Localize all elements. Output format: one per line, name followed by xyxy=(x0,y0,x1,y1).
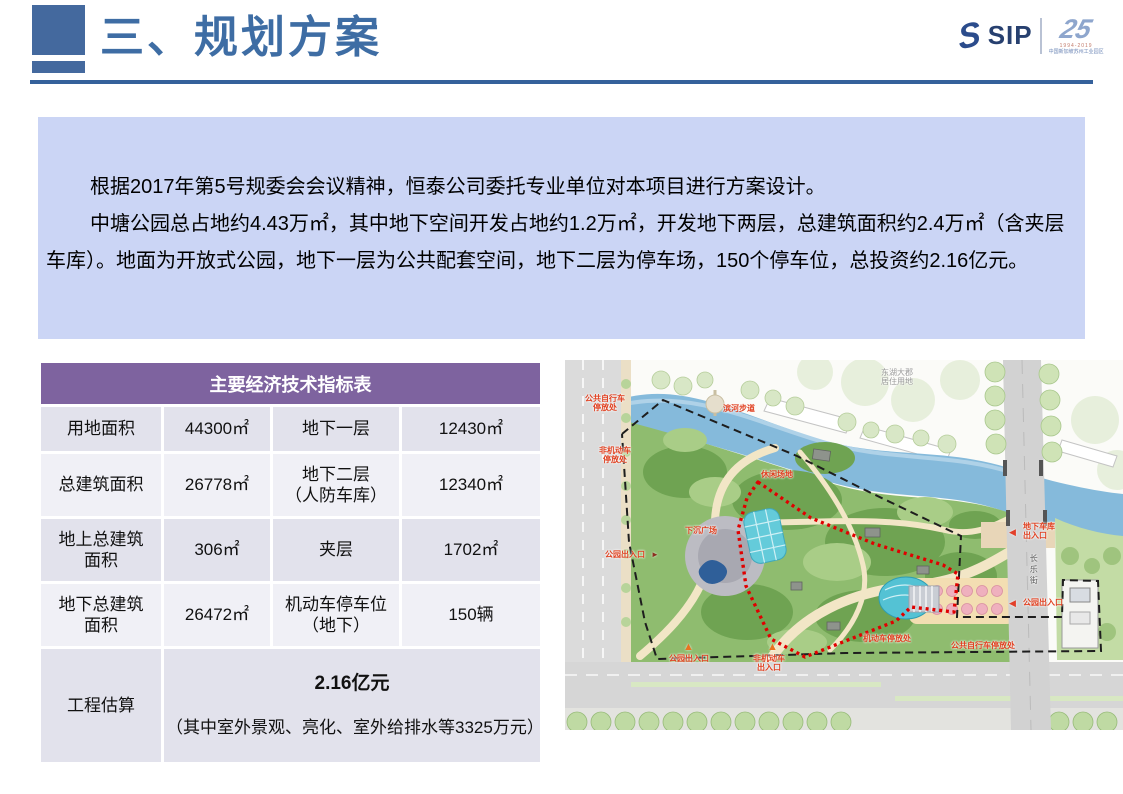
map-label-park-entrance-south: 公园出入口 xyxy=(669,654,709,663)
indicator-label: 工程估算 xyxy=(41,649,161,762)
indicator-value: 150辆 xyxy=(402,584,540,646)
indicator-value: 26472㎡ xyxy=(164,584,270,646)
map-label-bike-parking-nw: 公共自行车 停放处 xyxy=(585,394,625,412)
site-plan-graphic xyxy=(565,360,1123,730)
indicator-label: 夹层 xyxy=(273,519,399,581)
table-row: 地下总建筑 面积 26472㎡ 机动车停车位 （地下） 150辆 xyxy=(41,584,540,646)
map-label-park-entrance-east: 公园出入口 xyxy=(1023,598,1063,607)
park-entrance-east-arrow-icon: ◀ xyxy=(1009,599,1016,608)
site-plan: 公共自行车 停放处 非机动车 停放处 滨河步道 休闲场地 下沉广场 ◀ 地下车库… xyxy=(565,360,1123,730)
non-motor-entrance-arrow-icon: ▲ xyxy=(767,642,778,653)
map-label-bike-parking-se: 公共自行车停放处 xyxy=(951,641,1015,650)
map-label-garage-entrance: 地下车库 出入口 xyxy=(1023,522,1055,540)
map-label-non-motor-entrance: 非机动车 出入口 xyxy=(753,654,785,672)
indicator-label: 机动车停车位 （地下） xyxy=(273,584,399,646)
park-entrance-west-arrow-icon: ► xyxy=(651,551,659,559)
map-label-leisure-area: 休闲场地 xyxy=(761,470,793,479)
map-label-sunken-plaza: 下沉广场 xyxy=(685,526,717,535)
indicator-label: 地上总建筑 面积 xyxy=(41,519,161,581)
table-title-row: 主要经济技术指标表 xyxy=(41,363,540,404)
park-entrance-south-arrow-icon: ▲ xyxy=(683,642,694,653)
indicator-value: 12340㎡ xyxy=(402,454,540,516)
indicator-value: 1702㎡ xyxy=(402,519,540,581)
map-label-residential: 东湖大郡 居住用地 xyxy=(881,368,913,386)
indicator-label: 总建筑面积 xyxy=(41,454,161,516)
indicator-value: 26778㎡ xyxy=(164,454,270,516)
table-row: 总建筑面积 26778㎡ 地下二层 （人防车库） 12340㎡ xyxy=(41,454,540,516)
title-underline xyxy=(30,80,1093,84)
anniversary-logo: 25 1994-2019 中国新加坡苏州工业园区 xyxy=(1049,16,1104,55)
indicator-label: 地下总建筑 面积 xyxy=(41,584,161,646)
indicator-value: 12430㎡ xyxy=(402,407,540,451)
table-row-estimate: 工程估算 2.16亿元 （其中室外景观、亮化、室外给排水等3325万元） xyxy=(41,649,540,762)
title-decor-square xyxy=(32,5,85,55)
sip-logo-text: SIP xyxy=(988,20,1033,51)
intro-paragraph-1: 根据2017年第5号规委会会议精神，恒泰公司委托专业单位对本项目进行方案设计。 xyxy=(46,169,1065,206)
map-label-riverside-walk: 滨河步道 xyxy=(723,404,755,413)
estimate-value: 2.16亿元 xyxy=(166,672,538,696)
estimate-cell: 2.16亿元 （其中室外景观、亮化、室外给排水等3325万元） xyxy=(164,649,540,762)
sip-swoosh-icon: S xyxy=(957,16,983,56)
title-decor-bar xyxy=(32,61,85,73)
indicator-label: 用地面积 xyxy=(41,407,161,451)
indicator-table: 主要经济技术指标表 用地面积 44300㎡ 地下一层 12430㎡ 总建筑面积 … xyxy=(38,360,543,765)
map-label-park-entrance-west: 公园出入口 xyxy=(605,550,645,559)
logo-divider xyxy=(1040,18,1042,54)
indicator-label: 地下一层 xyxy=(273,407,399,451)
anniversary-org: 中国新加坡苏州工业园区 xyxy=(1049,50,1104,55)
indicator-value: 44300㎡ xyxy=(164,407,270,451)
anniversary-25-icon: 25 xyxy=(1058,16,1095,43)
garage-entrance-arrow-icon: ◀ xyxy=(1009,528,1016,537)
sip-logo: S SIP 25 1994-2019 中国新加坡苏州工业园区 xyxy=(958,16,1104,55)
indicator-label: 地下二层 （人防车库） xyxy=(273,454,399,516)
table-row: 用地面积 44300㎡ 地下一层 12430㎡ xyxy=(41,407,540,451)
slide: 三、规划方案 S SIP 25 1994-2019 中国新加坡苏州工业园区 根据… xyxy=(0,0,1123,794)
indicator-value: 306㎡ xyxy=(164,519,270,581)
table-row: 地上总建筑 面积 306㎡ 夹层 1702㎡ xyxy=(41,519,540,581)
map-label-motor-parking: 机动车停放处 xyxy=(863,634,911,643)
intro-box: 根据2017年第5号规委会会议精神，恒泰公司委托专业单位对本项目进行方案设计。 … xyxy=(38,117,1085,339)
intro-paragraph-2: 中塘公园总占地约4.43万㎡，其中地下空间开发占地约1.2万㎡，开发地下两层，总… xyxy=(46,206,1065,280)
map-label-street-changle: 长乐街 xyxy=(1029,554,1038,587)
table-title: 主要经济技术指标表 xyxy=(41,363,540,404)
estimate-note: （其中室外景观、亮化、室外给排水等3325万元） xyxy=(166,717,538,738)
page-title: 三、规划方案 xyxy=(100,6,382,70)
map-label-non-motor-parking: 非机动车 停放处 xyxy=(599,446,631,464)
